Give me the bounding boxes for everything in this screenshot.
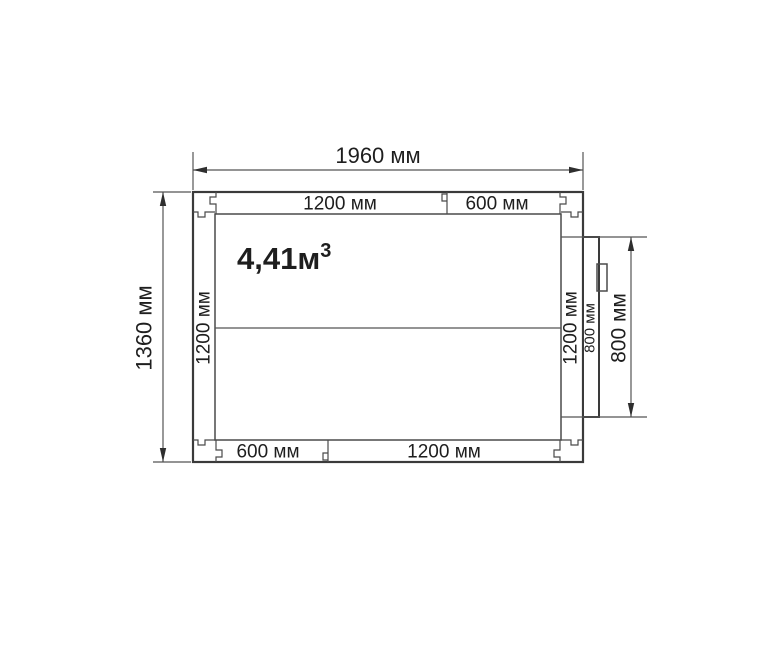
room-outline [193, 192, 583, 462]
left-wall-panel-label: 1200 мм [194, 291, 215, 365]
dimension-overall-height: 1360 мм [132, 192, 192, 462]
top-wall-panel-a-label: 1200 мм [303, 194, 377, 215]
joint-bottom-right-vertical [554, 440, 560, 462]
panel-joints [193, 192, 583, 462]
room-outer-wall [193, 192, 583, 462]
overall-width-label: 1960 мм [335, 143, 420, 168]
door-panel-label: 800 мм [582, 303, 599, 353]
joint-bottom-left-horizontal [193, 440, 215, 445]
joint-bottom-left-vertical [216, 440, 222, 462]
joint-bottom-right-horizontal [561, 440, 583, 445]
volume-exponent: 3 [320, 240, 331, 262]
joint-top-left-horizontal [193, 212, 215, 217]
dimension-overall-width: 1960 мм [193, 143, 583, 190]
top-wall-panel-b-label: 600 мм [465, 194, 528, 215]
joint-top-right-horizontal [561, 212, 583, 217]
bottom-wall-panel-a-label: 600 мм [236, 442, 299, 463]
overall-height-label: 1360 мм [132, 285, 157, 370]
door-opening-label: 800 мм [608, 293, 631, 363]
joint-top-left-vertical [210, 192, 216, 214]
volume-label: 4,41м3 [237, 240, 331, 276]
right-wall-panel-label: 1200 мм [561, 291, 582, 365]
floor-plan: 1960 мм 1360 мм 800 мм 1200 мм 600 мм 60… [0, 0, 761, 658]
joint-top-wall-mid [442, 192, 447, 214]
bottom-wall-panel-b-label: 1200 мм [407, 442, 481, 463]
floor-plan-canvas: 1960 мм 1360 мм 800 мм 1200 мм 600 мм 60… [0, 0, 761, 658]
volume-value: 4,41м [237, 241, 320, 276]
joint-top-right-vertical [560, 192, 566, 214]
joint-bottom-wall-mid [323, 440, 328, 462]
